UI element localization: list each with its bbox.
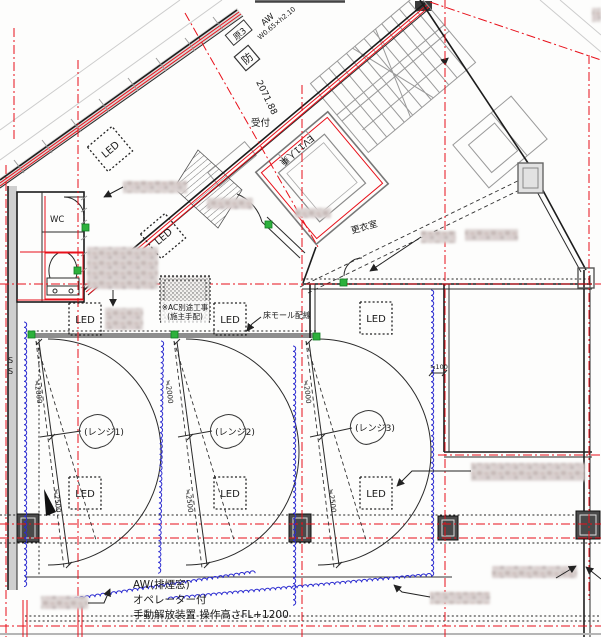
redacted-text xyxy=(295,208,331,218)
green-marker xyxy=(28,331,35,338)
floor-mold-label: 床モール配線 xyxy=(263,310,311,320)
reception-label: 受付 xyxy=(251,117,271,129)
led-box: LED xyxy=(87,126,132,171)
smoke-note-line2: オペレーター付 xyxy=(133,593,207,606)
redacted-text xyxy=(430,592,490,604)
redacted-text xyxy=(471,463,585,481)
redacted-text xyxy=(207,198,253,209)
range2-label: (レンジ2) xyxy=(215,428,255,438)
range-bay-2 xyxy=(174,339,299,568)
swing-arc xyxy=(318,339,431,565)
led-label: LED xyxy=(366,314,386,325)
redacted-text xyxy=(123,181,187,193)
range1-label: (レンジ1) xyxy=(84,428,124,438)
wiring-coil xyxy=(431,290,434,576)
wc-block xyxy=(17,192,87,302)
dimension-2500: ≒2500 xyxy=(327,489,338,513)
led-label: LED xyxy=(220,489,240,500)
led-box: LED xyxy=(360,477,392,509)
led-label: LED xyxy=(220,315,240,326)
green-marker xyxy=(74,267,81,274)
window-tag-label: 原3 xyxy=(232,26,249,43)
redacted-text xyxy=(41,596,88,609)
green-marker xyxy=(82,224,89,231)
redacted-text xyxy=(105,308,143,330)
dimension-2000: ≒2000 xyxy=(302,380,313,404)
wc-label: WC xyxy=(50,215,64,225)
ac-unit-box: ※AC別途工事 (施主手配) xyxy=(160,276,210,323)
led-label: LED xyxy=(366,489,386,500)
wiring-coil xyxy=(24,322,27,587)
green-marker xyxy=(265,221,272,228)
green-marker xyxy=(340,279,347,286)
floor-plan-drawing: LED LED LED LED LED LED LED LED ※AC別途工事 … xyxy=(0,0,601,637)
led-label: LED xyxy=(100,139,122,160)
green-marker xyxy=(313,333,320,340)
led-box: LED xyxy=(214,303,246,335)
led-box: LED xyxy=(360,302,392,334)
exterior-walls xyxy=(0,0,586,590)
smoke-vent-note: AW(排煙窓) オペレーター付 手動解放装置 操作高さFL+1200 xyxy=(133,578,289,621)
coil-end-symbol: S xyxy=(8,367,13,376)
led-label: LED xyxy=(75,315,95,326)
range3-label: (レンジ3) xyxy=(355,424,395,434)
dimension-2500: ≒2500 xyxy=(184,489,195,513)
dimension-2000: ≒2000 xyxy=(33,380,44,404)
led-box: LED xyxy=(214,477,246,509)
smoke-note-line3: 手動解放装置 操作高さFL+1200 xyxy=(133,608,289,621)
fire-tag: 防 xyxy=(234,45,259,70)
redacted-text xyxy=(492,566,577,578)
wiring-coil xyxy=(293,346,296,605)
dimension-2000: ≒2000 xyxy=(164,380,175,404)
leader-arrows xyxy=(88,187,601,603)
redacted-text xyxy=(592,8,601,22)
floor-plan-canvas: LED LED LED LED LED LED LED LED ※AC別途工事 … xyxy=(0,0,601,637)
columns xyxy=(17,511,600,542)
range-bay-1 xyxy=(36,339,161,568)
led-box: LED xyxy=(69,303,101,335)
staircase xyxy=(310,0,475,152)
ac-note-line2: (施主手配) xyxy=(167,311,203,321)
redacted-text xyxy=(87,247,158,289)
changing-room-label: 更衣室 xyxy=(350,218,379,237)
swing-arc xyxy=(48,339,161,565)
led-label: LED xyxy=(75,489,95,500)
bottom-walls xyxy=(0,489,601,634)
diagonal-dimension: 2071.88 xyxy=(253,79,278,117)
dimension-100: ≒100 xyxy=(430,363,448,371)
redacted-text xyxy=(465,229,518,241)
smoke-note-line1: AW(排煙窓) xyxy=(133,578,190,591)
ac-note-line1: ※AC別途工事 xyxy=(162,302,209,312)
swing-arc xyxy=(186,339,299,565)
coil-end-symbol: S xyxy=(8,356,13,365)
range-bay-3 xyxy=(306,339,431,568)
redacted-text xyxy=(421,231,456,243)
range-top-wall xyxy=(28,284,316,577)
green-marker xyxy=(171,331,178,338)
